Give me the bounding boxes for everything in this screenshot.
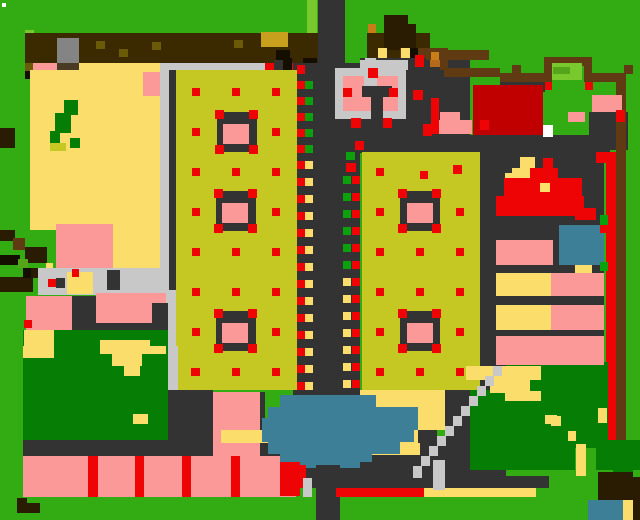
map-tile-red-flower bbox=[456, 248, 464, 256]
map-tile-red-flower bbox=[389, 88, 398, 97]
map-tile-stone-path bbox=[421, 456, 430, 466]
map-tile-sand bbox=[505, 391, 527, 401]
map-tile-sand bbox=[305, 212, 313, 220]
map-tile-road bbox=[56, 278, 65, 288]
map-tile-stone-path bbox=[461, 406, 470, 416]
map-tile-fence-brown bbox=[512, 65, 521, 73]
map-tile-red-flower bbox=[432, 309, 441, 318]
map-tile-sand bbox=[623, 500, 633, 520]
map-tile-red-flower bbox=[297, 263, 305, 271]
map-tile-red-flower bbox=[297, 212, 305, 220]
map-tile-pink-roof bbox=[551, 305, 604, 330]
map-tile-water bbox=[280, 395, 376, 407]
map-tile-red-flower bbox=[192, 328, 200, 336]
map-tile-red-flower bbox=[272, 328, 280, 336]
map-tile-fence-brown bbox=[616, 77, 626, 445]
map-tile-red-flower bbox=[415, 55, 424, 67]
map-tile-white bbox=[543, 125, 553, 137]
map-tile-red-flower bbox=[585, 82, 593, 90]
map-tile-red-flower bbox=[346, 163, 356, 172]
map-tile-red-flower bbox=[192, 208, 200, 216]
map-tile-sand bbox=[305, 348, 313, 356]
map-tile-sand bbox=[343, 295, 351, 303]
map-tile-red-flower bbox=[351, 118, 361, 128]
map-tile-red-flower bbox=[272, 128, 280, 136]
map-tile-pink-roof bbox=[222, 203, 248, 223]
map-tile-sand bbox=[576, 444, 586, 476]
map-tile-pink-roof bbox=[223, 124, 249, 144]
map-tile-pink-roof bbox=[568, 112, 585, 122]
map-tile-pink-roof bbox=[23, 456, 296, 497]
map-tile-red-flower bbox=[88, 456, 98, 497]
map-tile-flower-green bbox=[600, 262, 608, 271]
map-tile-log-brown bbox=[28, 250, 37, 259]
map-tile-red-flower bbox=[596, 152, 616, 163]
map-tile-red-flower bbox=[398, 189, 407, 198]
map-tile-stone-path bbox=[303, 478, 312, 497]
map-tile-sand bbox=[305, 382, 313, 390]
map-tile-flower-green bbox=[305, 113, 313, 121]
map-tile-red-flower bbox=[297, 280, 305, 288]
map-tile-sand bbox=[305, 195, 313, 203]
map-tile-red-flower bbox=[182, 456, 191, 497]
map-tile-stone-path bbox=[437, 436, 446, 446]
map-tile-white bbox=[2, 3, 6, 7]
map-tile-red-flower bbox=[232, 88, 240, 96]
map-tile-flower-green bbox=[343, 227, 351, 235]
map-tile-red-flower bbox=[398, 344, 407, 353]
map-tile-red-flower bbox=[297, 145, 305, 153]
map-tile-pink-roof bbox=[26, 296, 72, 330]
map-tile-red-flower bbox=[352, 210, 360, 218]
map-tile-red-flower bbox=[496, 196, 584, 216]
map-tile-sand bbox=[100, 340, 150, 354]
map-tile-red-flower bbox=[249, 145, 258, 154]
map-tile-flower-field bbox=[50, 143, 66, 151]
map-tile-red-flower bbox=[297, 229, 305, 237]
map-tile-red-flower bbox=[616, 110, 625, 122]
map-tile-log-brown bbox=[17, 503, 40, 513]
map-tile-tree-canopy bbox=[55, 113, 71, 133]
map-tile-stone-path bbox=[485, 376, 494, 386]
map-tile-sand bbox=[305, 297, 313, 305]
map-tile-tree-canopy bbox=[470, 390, 575, 470]
map-tile-red-flower bbox=[297, 297, 305, 305]
map-tile-red-flower bbox=[352, 261, 360, 269]
map-tile-red-flower bbox=[368, 68, 378, 78]
map-tile-red-flower bbox=[600, 225, 608, 233]
map-tile-sand bbox=[520, 157, 535, 168]
map-tile-red-flower bbox=[352, 193, 360, 201]
map-tile-water bbox=[370, 414, 418, 430]
map-tile-red-flower bbox=[432, 344, 441, 353]
map-tile-black bbox=[0, 255, 20, 265]
map-tile-red-flower bbox=[416, 368, 424, 376]
map-tile-red-flower bbox=[398, 224, 407, 233]
map-tile-sand bbox=[343, 346, 351, 354]
map-tile-stone-path bbox=[445, 426, 454, 436]
map-tile-sand bbox=[305, 263, 313, 271]
map-tile-red-flower bbox=[376, 208, 384, 216]
map-tile-red-flower bbox=[352, 244, 360, 252]
map-tile-sand bbox=[401, 48, 410, 58]
map-tile-stone-path bbox=[429, 446, 438, 456]
map-tile-water bbox=[559, 225, 604, 265]
map-tile-red-flower bbox=[297, 161, 305, 169]
map-tile-sand bbox=[343, 312, 351, 320]
map-tile-log-brown bbox=[633, 500, 640, 520]
map-tile-red-flower bbox=[343, 88, 352, 97]
map-tile-red-flower bbox=[192, 128, 200, 136]
map-tile-red-flower bbox=[352, 176, 360, 184]
map-tile-red-flower bbox=[352, 312, 360, 320]
map-tile-red-flower bbox=[352, 363, 360, 371]
map-tile-red-flower bbox=[544, 82, 552, 90]
map-tile-log-brown bbox=[633, 477, 640, 500]
map-tile-sand bbox=[23, 346, 47, 358]
map-tile-pink-roof bbox=[551, 273, 604, 296]
map-tile-log-brown bbox=[598, 472, 633, 500]
map-tile-stone-path bbox=[413, 466, 422, 478]
map-tile-red-flower bbox=[336, 488, 424, 497]
map-tile-red-flower bbox=[416, 248, 424, 256]
map-tile-red-flower bbox=[420, 171, 428, 179]
map-tile-road bbox=[371, 97, 383, 119]
map-tile-fence-brown bbox=[544, 66, 552, 82]
map-tile-pink-roof bbox=[222, 323, 248, 343]
map-tile-flower-green bbox=[343, 210, 351, 218]
map-tile-fence-brown bbox=[584, 66, 592, 82]
map-tile-red-flower bbox=[352, 278, 360, 286]
map-tile-flower-green bbox=[346, 152, 355, 160]
map-tile-hedge-berry bbox=[234, 40, 243, 48]
map-tile-red-flower bbox=[192, 288, 200, 296]
map-tile-red-flower bbox=[297, 331, 305, 339]
map-tile-sand bbox=[343, 278, 351, 286]
map-tile-red-flower bbox=[297, 113, 305, 121]
map-tile-red-flower bbox=[352, 227, 360, 235]
map-tile-red-flower bbox=[297, 348, 305, 356]
map-tile-red-flower bbox=[355, 141, 364, 150]
map-tile-red-flower bbox=[376, 168, 384, 176]
map-tile-red-flower bbox=[431, 98, 439, 125]
map-tile-red-flower bbox=[297, 195, 305, 203]
map-tile-log-brown bbox=[0, 128, 15, 148]
map-tile-red-flower bbox=[376, 328, 384, 336]
map-tile-sand bbox=[124, 366, 140, 376]
map-tile-red-flower bbox=[248, 309, 257, 318]
map-tile-pink-roof bbox=[496, 336, 604, 365]
map-tile-red-flower bbox=[272, 288, 280, 296]
map-tile-flower-green bbox=[305, 97, 313, 105]
map-tile-stone-path bbox=[170, 346, 178, 390]
map-tile-red-flower bbox=[432, 189, 441, 198]
map-tile-red-flower bbox=[352, 329, 360, 337]
map-tile-red-flower bbox=[272, 88, 280, 96]
map-tile-pink-roof bbox=[440, 112, 460, 120]
map-tile-sand bbox=[343, 363, 351, 371]
map-tile-sand bbox=[568, 431, 576, 441]
map-tile-stone-block bbox=[57, 38, 79, 63]
map-tile-red-flower bbox=[453, 165, 462, 174]
map-tile-red-flower bbox=[423, 127, 432, 136]
map-tile-orange-knob bbox=[431, 52, 439, 60]
map-tile-red-flower bbox=[192, 88, 200, 96]
map-tile-red-flower bbox=[352, 346, 360, 354]
map-tile-bush-green bbox=[18, 259, 28, 268]
map-tile-stone-path bbox=[160, 71, 169, 290]
map-tile-red-flower bbox=[383, 118, 392, 128]
map-tile-gate-gold bbox=[261, 32, 288, 47]
map-tile-red-flower bbox=[376, 368, 384, 376]
map-tile-sand bbox=[305, 314, 313, 322]
map-tile-hedge-berry bbox=[119, 49, 128, 57]
map-tile-sand bbox=[598, 408, 607, 423]
map-tile-red-flower bbox=[297, 81, 305, 89]
map-tile-red-flower bbox=[272, 168, 280, 176]
map-tile-sand bbox=[79, 63, 160, 72]
map-tile-sand bbox=[305, 331, 313, 339]
map-tile-stone-path bbox=[477, 386, 486, 396]
map-tile-flower-green bbox=[343, 261, 351, 269]
map-tile-sand bbox=[112, 354, 142, 366]
map-tile-red-flower bbox=[280, 462, 300, 496]
map-tile-flower-green bbox=[305, 129, 313, 137]
map-tile-red-flower bbox=[214, 224, 223, 233]
map-tile-red-flower bbox=[297, 314, 305, 322]
map-tile-red-flower bbox=[413, 90, 423, 100]
map-tile-red-flower bbox=[376, 248, 384, 256]
map-tile-sand bbox=[305, 229, 313, 237]
map-tile-red-flower bbox=[297, 365, 305, 373]
map-tile-red-flower bbox=[272, 208, 280, 216]
map-tile-sand bbox=[113, 228, 160, 268]
map-tile-red-flower bbox=[215, 110, 224, 119]
map-tile-red-flower bbox=[232, 168, 240, 176]
map-tile-red-flower bbox=[232, 288, 240, 296]
map-tile-pink-roof bbox=[56, 224, 113, 270]
map-tile-sand bbox=[466, 366, 541, 380]
map-tile-fence-brown bbox=[13, 238, 25, 250]
map-tile-light-grass bbox=[307, 0, 317, 33]
map-tile-red-flower bbox=[352, 295, 360, 303]
map-tile-red-flower bbox=[232, 248, 240, 256]
map-tile-red-flower bbox=[248, 224, 257, 233]
map-tile-red-flower bbox=[232, 368, 240, 376]
map-tile-red-flower bbox=[248, 344, 257, 353]
map-tile-red-flower bbox=[297, 65, 305, 74]
map-tile-stone-path bbox=[365, 58, 376, 68]
pixel-town-map[interactable] bbox=[0, 0, 640, 520]
map-tile-red-flower bbox=[297, 178, 305, 186]
map-tile-stone-path bbox=[453, 416, 462, 426]
map-tile-road bbox=[445, 476, 549, 488]
map-tile-sand bbox=[133, 414, 148, 424]
map-tile-red-flower bbox=[456, 288, 464, 296]
map-tile-pink-roof bbox=[439, 120, 472, 134]
map-tile-red-flower bbox=[214, 189, 223, 198]
map-tile-red-flower bbox=[192, 168, 200, 176]
map-tile-red-flower bbox=[297, 246, 305, 254]
map-tile-red-flower bbox=[272, 248, 280, 256]
map-tile-pink-roof bbox=[496, 240, 553, 265]
map-tile-flower-green bbox=[305, 81, 313, 89]
map-tile-red-flower bbox=[191, 368, 200, 376]
map-tile-red-flower bbox=[214, 309, 223, 318]
map-tile-red-flower bbox=[376, 288, 384, 296]
map-tile-sand bbox=[545, 415, 557, 424]
map-tile-tree-canopy bbox=[596, 440, 640, 470]
map-tile-fence-brown bbox=[500, 73, 548, 82]
map-tile-road bbox=[418, 430, 437, 443]
map-tile-hedge-berry bbox=[152, 42, 161, 50]
map-tile-flower-green bbox=[343, 244, 351, 252]
map-tile-pink-roof bbox=[407, 323, 433, 343]
map-tile-road bbox=[318, 0, 345, 63]
map-tile-red-flower bbox=[214, 344, 223, 353]
map-tile-sand bbox=[305, 161, 313, 169]
map-tile-red-flower bbox=[575, 208, 596, 220]
map-tile-sand bbox=[496, 273, 551, 296]
map-tile-tree-canopy bbox=[70, 138, 80, 148]
map-tile-stone-path bbox=[493, 366, 502, 376]
map-tile-sand bbox=[343, 380, 351, 388]
map-tile-sand bbox=[305, 280, 313, 288]
map-tile-flower-green bbox=[343, 176, 351, 184]
map-tile-pink-roof bbox=[213, 392, 260, 456]
map-tile-red-flower bbox=[480, 120, 489, 130]
map-tile-black bbox=[283, 58, 292, 70]
map-tile-red-flower bbox=[456, 208, 464, 216]
map-tile-red-flower bbox=[72, 269, 79, 277]
map-tile-sand bbox=[305, 246, 313, 254]
map-tile-stone-path bbox=[433, 460, 445, 490]
map-tile-sand bbox=[526, 391, 541, 401]
map-tile-bush-green bbox=[553, 67, 570, 74]
map-tile-log-brown bbox=[407, 24, 416, 50]
map-tile-road bbox=[107, 270, 120, 290]
map-tile-hedge-berry bbox=[96, 41, 105, 49]
map-tile-fence-brown bbox=[444, 68, 500, 77]
map-tile-red-flower bbox=[432, 224, 441, 233]
map-tile-red-flower bbox=[398, 309, 407, 318]
map-tile-red-flower bbox=[456, 328, 464, 336]
map-tile-sand bbox=[496, 305, 551, 330]
map-tile-red-flower bbox=[215, 145, 224, 154]
map-tile-red-flower bbox=[297, 129, 305, 137]
map-tile-flower-green bbox=[343, 193, 351, 201]
map-tile-log-brown bbox=[384, 15, 408, 50]
map-tile-red-flower bbox=[24, 320, 32, 328]
map-tile-red-flower bbox=[416, 288, 424, 296]
map-tile-sand bbox=[540, 183, 550, 192]
map-tile-black bbox=[23, 268, 31, 278]
map-tile-sand bbox=[343, 329, 351, 337]
map-tile-stone-path bbox=[469, 396, 478, 406]
map-tile-fence-brown bbox=[624, 65, 633, 74]
map-tile-water bbox=[588, 500, 623, 520]
map-tile-flower-field bbox=[362, 152, 480, 390]
map-tile-water bbox=[280, 454, 372, 462]
map-tile-sand bbox=[378, 48, 387, 58]
map-tile-red-flower bbox=[135, 456, 144, 497]
map-tile-red-flower bbox=[249, 110, 258, 119]
map-tile-orange-knob bbox=[368, 24, 376, 33]
map-tile-sand bbox=[150, 346, 166, 354]
map-tile-flower-green bbox=[600, 215, 608, 225]
map-tile-sand bbox=[305, 178, 313, 186]
map-tile-red-flower bbox=[248, 189, 257, 198]
map-tile-flower-green bbox=[305, 145, 313, 153]
map-tile-red-flower bbox=[48, 279, 56, 287]
map-tile-red-flower bbox=[456, 368, 464, 376]
map-tile-sand bbox=[67, 272, 93, 294]
map-tile-red-flower bbox=[272, 368, 280, 376]
map-tile-red-flower bbox=[297, 382, 305, 390]
map-tile-pink-roof bbox=[407, 203, 433, 223]
map-tile-log-brown bbox=[0, 277, 33, 292]
map-tile-red-flower bbox=[297, 97, 305, 105]
map-tile-sand bbox=[305, 365, 313, 373]
map-tile-pink-roof bbox=[96, 293, 153, 323]
map-tile-water bbox=[268, 442, 400, 454]
map-tile-red-flower bbox=[192, 248, 200, 256]
map-tile-red-flower bbox=[352, 380, 360, 388]
map-tile-road bbox=[362, 86, 392, 97]
